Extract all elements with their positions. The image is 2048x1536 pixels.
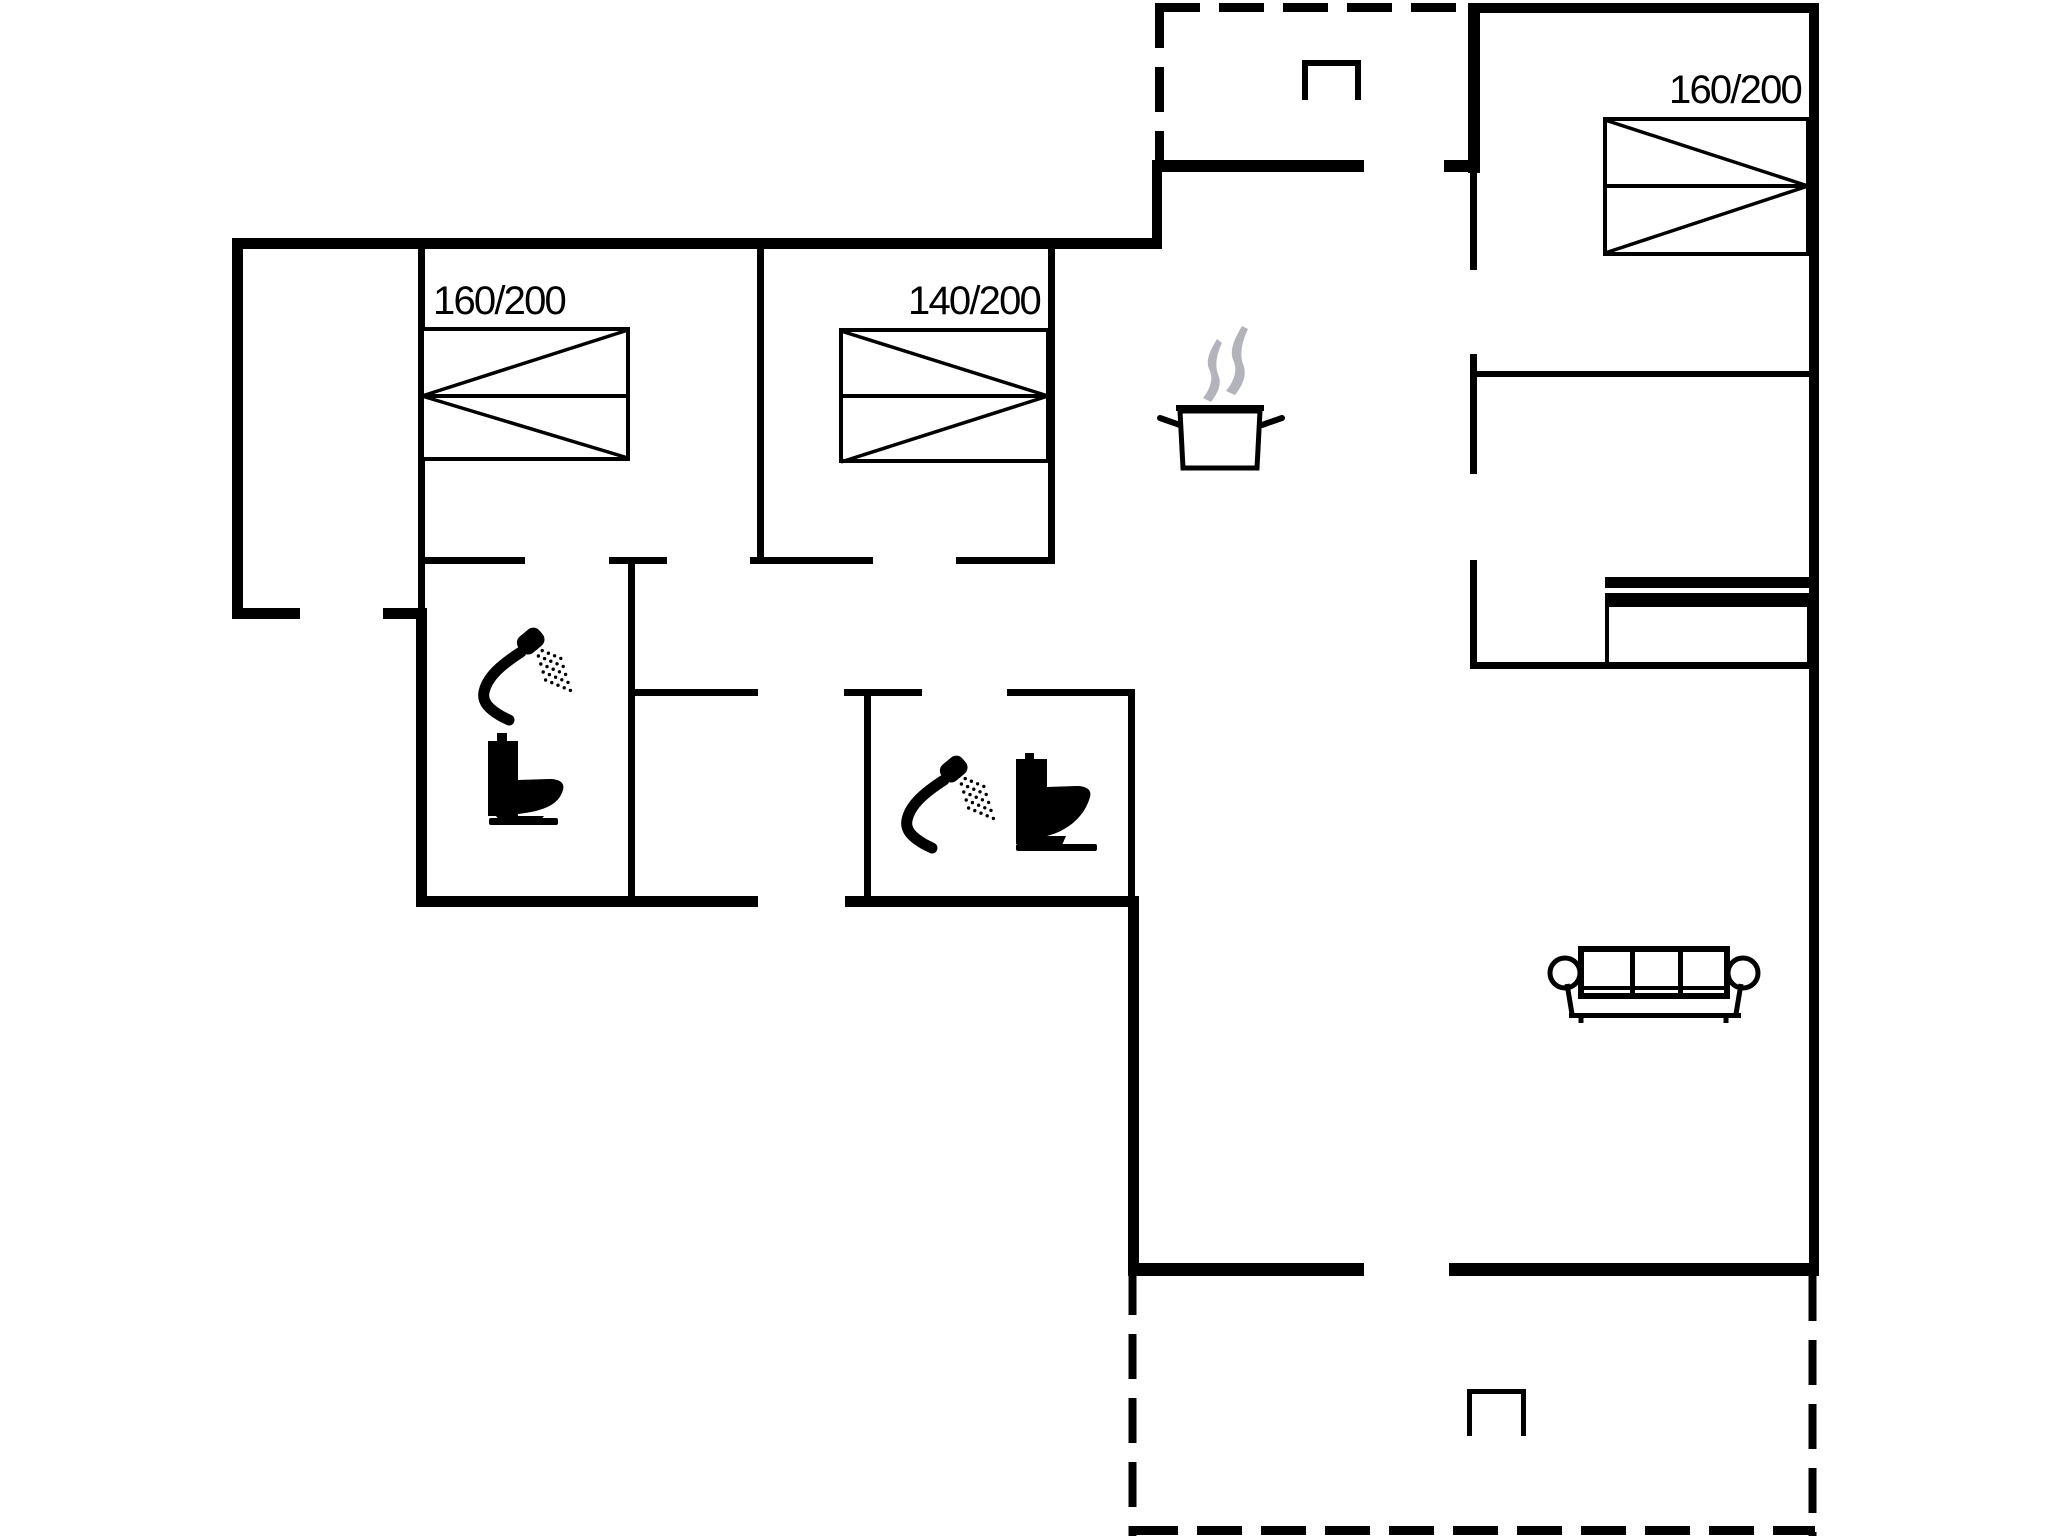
svg-text:140/200: 140/200 bbox=[908, 279, 1041, 323]
svg-text:160/200: 160/200 bbox=[433, 279, 566, 323]
svg-text:160/200: 160/200 bbox=[1669, 68, 1802, 112]
